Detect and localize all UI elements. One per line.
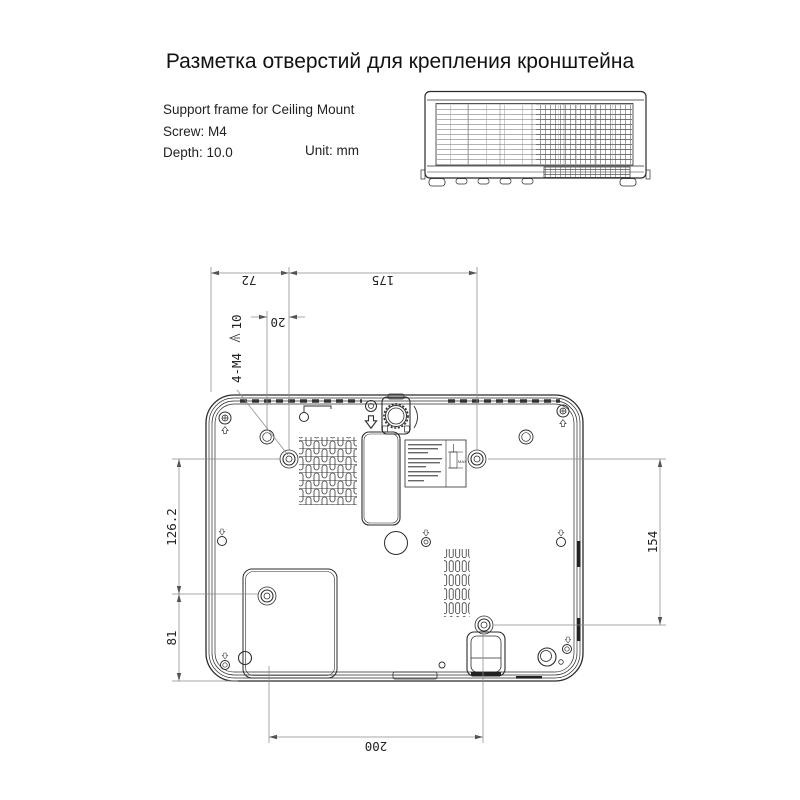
dim-bottom: 200 bbox=[269, 735, 483, 754]
flag-screw bbox=[300, 406, 332, 422]
callout-holes-label: 4-M4 bbox=[229, 353, 244, 383]
corner-screw-top-left bbox=[219, 412, 231, 434]
mounting-hole-top-right bbox=[468, 450, 486, 468]
callout-depth-label: 10 bbox=[229, 314, 244, 329]
mounting-hole-bottom-left bbox=[258, 587, 276, 605]
pad-circle-right bbox=[519, 430, 533, 444]
pin-hole bbox=[439, 662, 445, 668]
drawing-page: Разметка отверстий для крепления кронште… bbox=[0, 0, 800, 800]
front-grille bbox=[436, 104, 633, 166]
projector-bottom-view: MAX bbox=[206, 394, 583, 681]
dim-200-label: 200 bbox=[365, 739, 388, 754]
front-bottom-vent bbox=[544, 167, 630, 178]
lamp-cover bbox=[362, 432, 400, 525]
foot-rear-right bbox=[538, 648, 556, 666]
bottom-vent-bar bbox=[516, 676, 542, 679]
sticker-max-label: MAX bbox=[458, 459, 467, 464]
dim-154-label: 154 bbox=[645, 531, 660, 554]
side-slot-lower bbox=[577, 618, 581, 641]
sticker-screw-diagram: MAX bbox=[448, 444, 467, 468]
dim-81-label: 81 bbox=[164, 630, 179, 645]
vent-slot-grid bbox=[444, 549, 470, 617]
projector-front-view bbox=[421, 92, 650, 187]
lock-screw bbox=[365, 401, 376, 429]
foot-rear-left bbox=[239, 652, 252, 665]
depth-symbol-icon bbox=[230, 334, 240, 342]
front-foot-assembly bbox=[382, 394, 418, 434]
side-screw-right bbox=[557, 530, 566, 547]
dim-top: 72 175 bbox=[211, 271, 477, 288]
dim-20: 20 bbox=[251, 315, 305, 330]
dim-72-label: 72 bbox=[241, 273, 256, 288]
front-feet bbox=[429, 179, 636, 187]
side-screw-left bbox=[218, 529, 227, 546]
corner-screw-bottom-left bbox=[221, 653, 230, 670]
access-panel bbox=[243, 569, 337, 678]
info-sticker: MAX bbox=[405, 440, 467, 487]
mounting-hole-top-left bbox=[280, 450, 298, 468]
vent-weave-grille bbox=[299, 437, 357, 505]
zoom-dial-circle bbox=[385, 532, 408, 555]
dim-175-label: 175 bbox=[372, 273, 395, 288]
corner-screw-bottom-right bbox=[559, 637, 572, 664]
pad-circle-left bbox=[260, 430, 274, 444]
dim-20-label: 20 bbox=[270, 315, 285, 330]
dim-left: 126.2 81 bbox=[164, 459, 181, 681]
mounting-hole-bottom-right bbox=[475, 616, 493, 634]
technical-drawing: MAX bbox=[0, 0, 800, 800]
dim-126-label: 126.2 bbox=[164, 508, 179, 546]
center-screw bbox=[422, 530, 431, 547]
side-slot-upper bbox=[577, 541, 581, 567]
dim-right: 154 bbox=[645, 459, 662, 625]
rear-adjuster-foot bbox=[467, 632, 505, 676]
callout-4-m4: 4-M4 10 bbox=[229, 314, 244, 383]
